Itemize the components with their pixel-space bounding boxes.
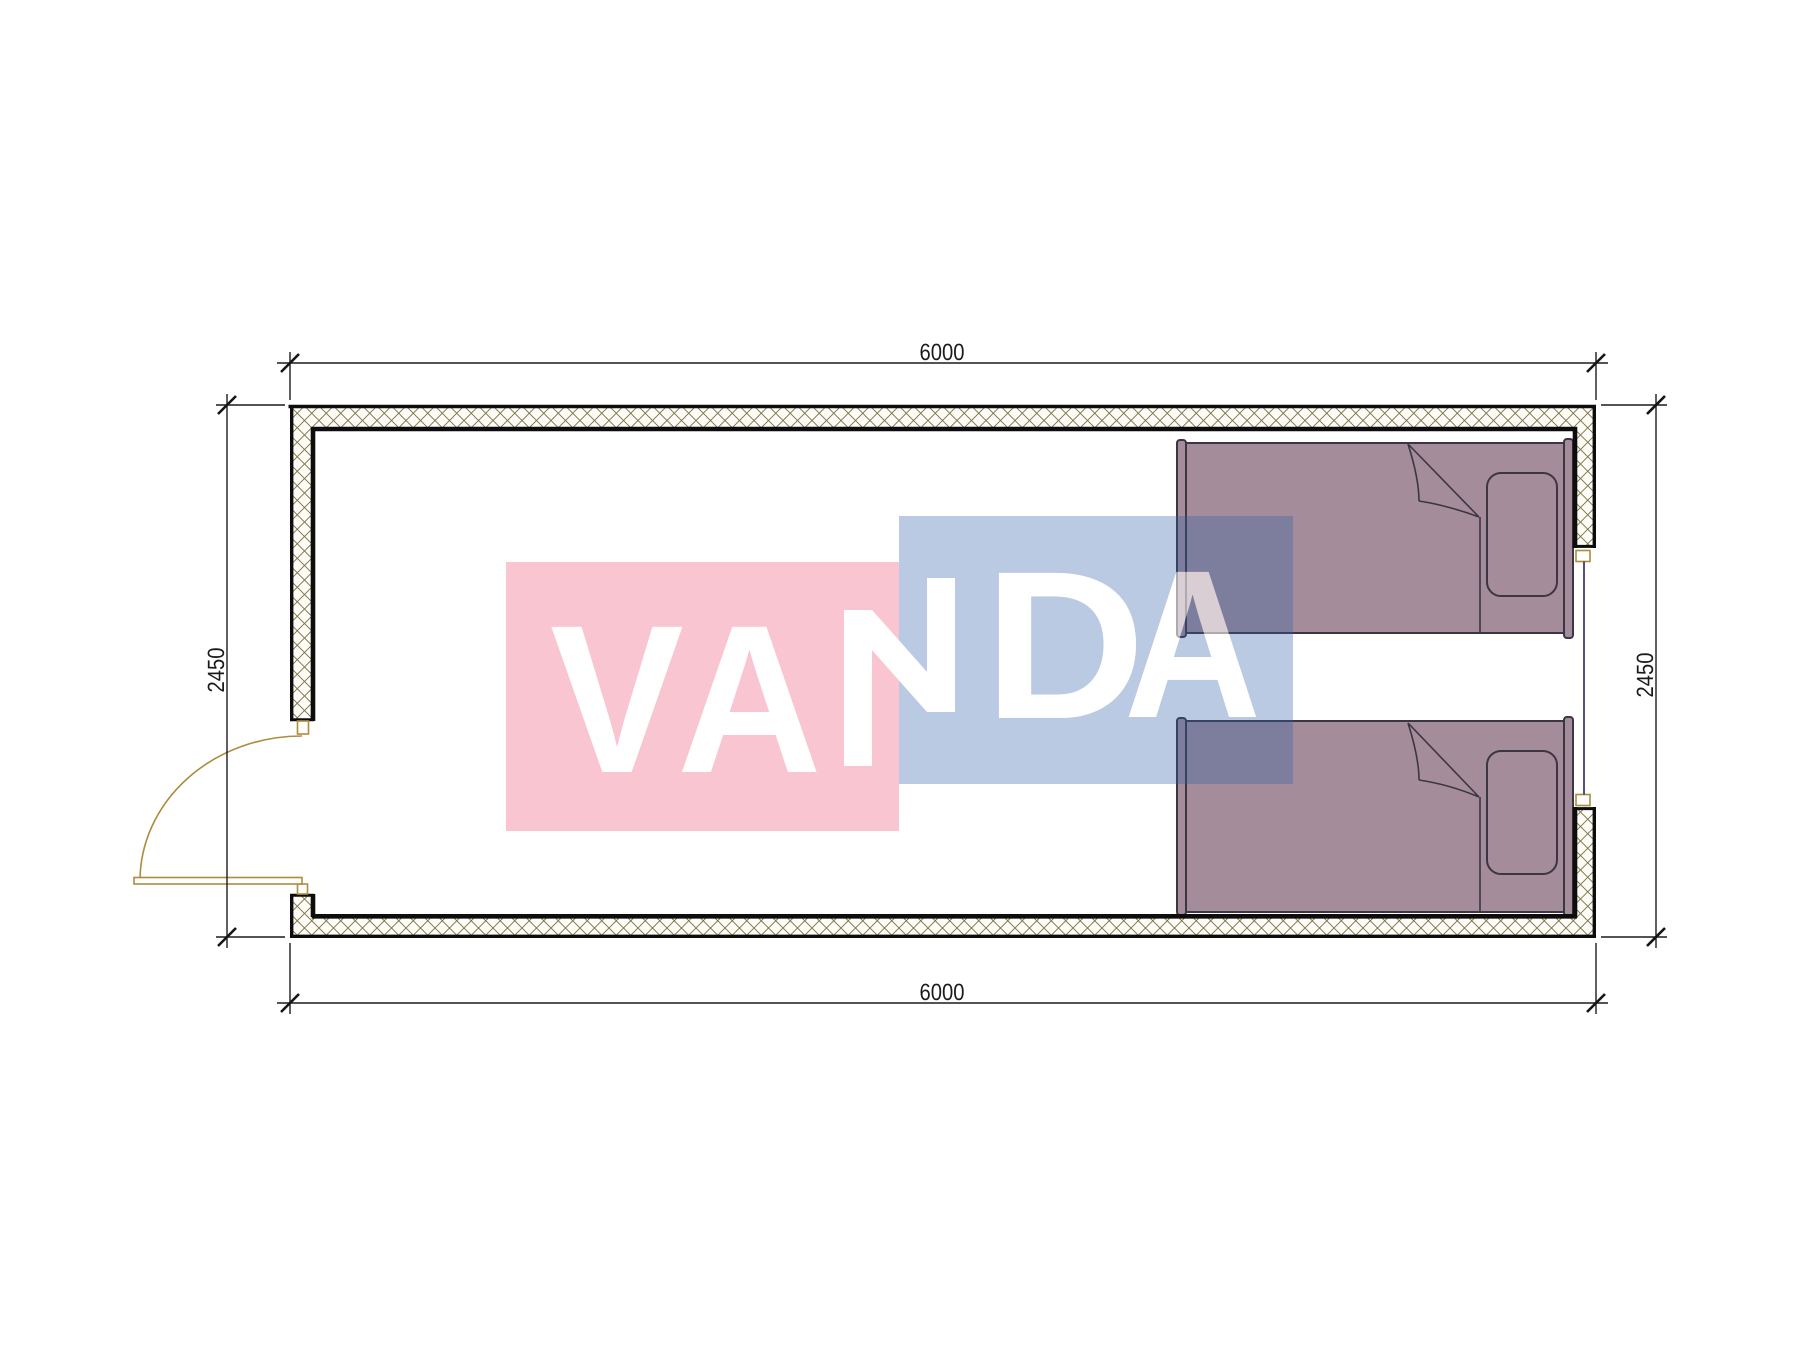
svg-text:2450: 2450 — [203, 648, 229, 693]
svg-text:D: D — [984, 527, 1145, 763]
svg-text:A: A — [1124, 526, 1261, 762]
svg-text:V: V — [550, 581, 684, 817]
svg-text:A: A — [677, 581, 822, 817]
svg-text:6000: 6000 — [920, 979, 965, 1005]
svg-text:2450: 2450 — [1632, 653, 1658, 698]
svg-text:6000: 6000 — [920, 339, 965, 365]
